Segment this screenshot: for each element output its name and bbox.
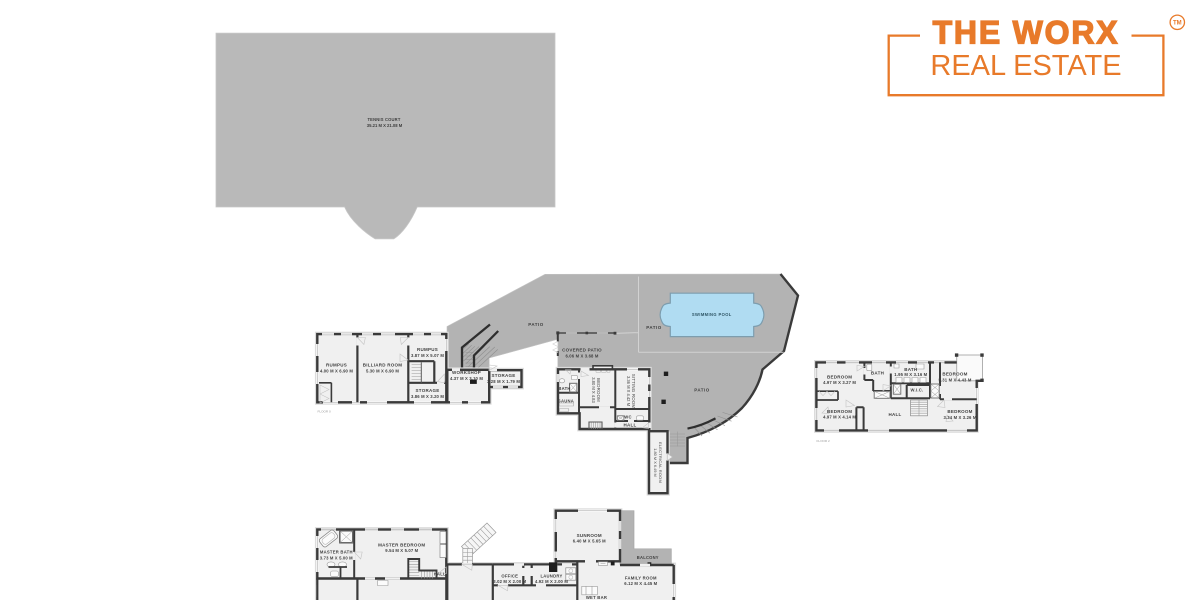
svg-text:6.12 M X 4.45 M: 6.12 M X 4.45 M bbox=[624, 581, 657, 586]
svg-text:4.37 M X 3.10 M: 4.37 M X 3.10 M bbox=[450, 376, 483, 381]
svg-text:BATH: BATH bbox=[558, 386, 570, 391]
svg-text:1.95 M X 3.16 M: 1.95 M X 3.16 M bbox=[894, 372, 927, 377]
svg-text:5.30 M X 6.90 M: 5.30 M X 6.90 M bbox=[366, 368, 399, 373]
svg-text:5.31 M X 4.43 M: 5.31 M X 4.43 M bbox=[939, 377, 972, 382]
svg-text:HALL: HALL bbox=[434, 571, 446, 576]
svg-text:4.00 M X 6.90 M: 4.00 M X 6.90 M bbox=[320, 368, 353, 373]
svg-text:3.87 M X 5.07 M: 3.87 M X 5.07 M bbox=[411, 353, 444, 358]
svg-text:MASTER BATH: MASTER BATH bbox=[320, 550, 353, 555]
svg-text:SWIMMING POOL: SWIMMING POOL bbox=[692, 312, 732, 317]
svg-text:LAUNDRY: LAUNDRY bbox=[540, 573, 562, 578]
svg-text:SUNROOM: SUNROOM bbox=[577, 533, 602, 538]
svg-text:6.40 M X 5.65 M: 6.40 M X 5.65 M bbox=[573, 539, 606, 544]
svg-text:BEDROOM: BEDROOM bbox=[827, 374, 852, 379]
svg-text:HALL: HALL bbox=[624, 423, 637, 428]
svg-text:WORKSHOP: WORKSHOP bbox=[452, 370, 481, 375]
svg-text:W.I.C.: W.I.C. bbox=[911, 388, 924, 393]
svg-text:3.80 M X 4.83: 3.80 M X 4.83 bbox=[591, 377, 596, 403]
svg-text:BATH: BATH bbox=[871, 370, 884, 375]
svg-text:BEDROOM: BEDROOM bbox=[827, 409, 852, 414]
svg-text:MASTER BEDROOM: MASTER BEDROOM bbox=[378, 542, 425, 547]
svg-text:3.73 M X 5.00 M: 3.73 M X 5.00 M bbox=[320, 555, 353, 560]
svg-text:3.36 M X 4.42 M: 3.36 M X 4.42 M bbox=[626, 376, 631, 407]
svg-text:TENNIS COURT: TENNIS COURT bbox=[367, 117, 400, 122]
svg-text:TM: TM bbox=[1173, 21, 1182, 27]
svg-text:THE WORX: THE WORX bbox=[933, 15, 1120, 51]
svg-text:WET BAR: WET BAR bbox=[586, 595, 607, 600]
svg-text:COVERED PATIO: COVERED PATIO bbox=[562, 348, 602, 353]
svg-text:9.54 M X 5.07 M: 9.54 M X 5.07 M bbox=[385, 548, 418, 553]
svg-text:3.34 M X 3.26 M: 3.34 M X 3.26 M bbox=[944, 415, 977, 420]
svg-text:PATIO: PATIO bbox=[528, 322, 544, 327]
svg-text:HALL: HALL bbox=[889, 412, 902, 417]
svg-text:35.21 M X 21.08 M: 35.21 M X 21.08 M bbox=[367, 123, 403, 128]
svg-text:PATIO: PATIO bbox=[646, 325, 662, 330]
svg-text:4.97 M X 4.14 M: 4.97 M X 4.14 M bbox=[823, 415, 856, 420]
svg-text:OFFICE: OFFICE bbox=[501, 573, 518, 578]
svg-text:FAMILY ROOM: FAMILY ROOM bbox=[625, 576, 657, 581]
svg-text:BEDROOM: BEDROOM bbox=[947, 409, 972, 414]
svg-text:RUMPUS: RUMPUS bbox=[326, 363, 347, 368]
svg-text:BALCONY: BALCONY bbox=[637, 555, 659, 560]
svg-text:PATIO: PATIO bbox=[694, 388, 710, 393]
svg-text:3.02 M X 2.00 M: 3.02 M X 2.00 M bbox=[493, 579, 526, 584]
svg-text:WC: WC bbox=[624, 415, 631, 420]
svg-text:REAL ESTATE: REAL ESTATE bbox=[930, 50, 1121, 82]
svg-text:3.86 M X 3.20 M: 3.86 M X 3.20 M bbox=[411, 394, 444, 399]
svg-text:BILLIARD ROOM: BILLIARD ROOM bbox=[363, 363, 403, 368]
svg-text:1.80 M X 6.49 M: 1.80 M X 6.49 M bbox=[653, 448, 658, 477]
svg-text:FLOOR 0: FLOOR 0 bbox=[318, 410, 332, 414]
svg-text:STORAGE: STORAGE bbox=[492, 373, 516, 378]
svg-text:4.97 M X 3.27 M: 4.97 M X 3.27 M bbox=[823, 380, 856, 385]
svg-text:SAUNA: SAUNA bbox=[558, 398, 574, 403]
svg-text:4.92 M X 2.00 M: 4.92 M X 2.00 M bbox=[535, 579, 568, 584]
svg-text:RUMPUS: RUMPUS bbox=[417, 347, 438, 352]
svg-text:BEDROOM: BEDROOM bbox=[942, 372, 967, 377]
svg-text:STORAGE: STORAGE bbox=[416, 388, 440, 393]
svg-text:6.06 M X 3.68 M: 6.06 M X 3.68 M bbox=[566, 353, 599, 358]
svg-text:3.28 M X 1.79 M: 3.28 M X 1.79 M bbox=[487, 379, 520, 384]
svg-text:FLOOR 2: FLOOR 2 bbox=[817, 439, 831, 443]
